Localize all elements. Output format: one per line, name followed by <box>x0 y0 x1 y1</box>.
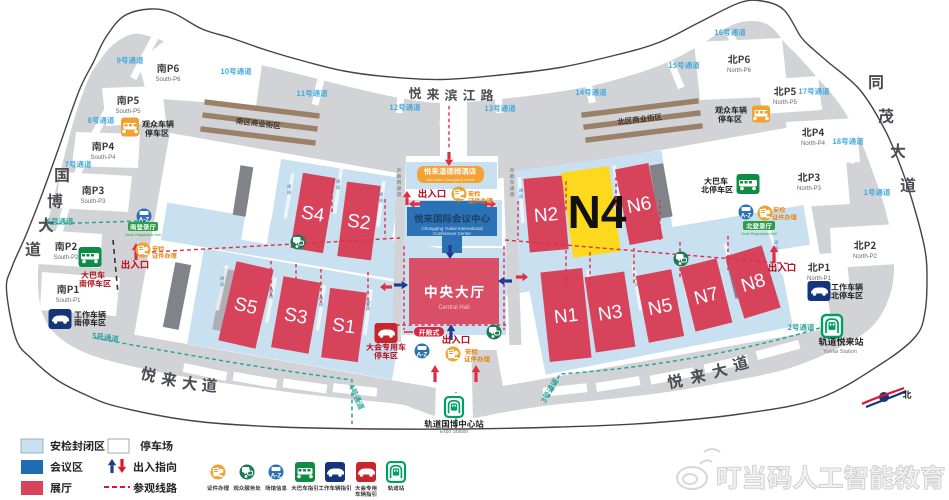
svg-text:Central Hall: Central Hall <box>438 305 469 311</box>
svg-text:North-P6: North-P6 <box>727 68 752 74</box>
svg-text:S4: S4 <box>300 202 327 227</box>
svg-text:North-P2: North-P2 <box>853 254 878 260</box>
svg-text:Yuelai Station: Yuelai Station <box>823 349 857 355</box>
svg-text:A-Z: A-Z <box>271 473 282 480</box>
svg-text:South-P3: South-P3 <box>80 199 106 205</box>
svg-text:North-P4: North-P4 <box>801 141 826 147</box>
svg-text:North Registration Hall: North Registration Hall <box>741 232 776 236</box>
svg-text:South-P6: South-P6 <box>155 77 181 83</box>
svg-text:N2: N2 <box>533 204 559 227</box>
svg-text:Wyndham Chongqing Yuelai: Wyndham Chongqing Yuelai <box>426 178 474 182</box>
svg-text:S1: S1 <box>331 315 357 339</box>
svg-text:A-Z: A-Z <box>741 213 752 220</box>
svg-text:A-Z: A-Z <box>417 352 428 359</box>
svg-text:South-P4: South-P4 <box>90 155 116 161</box>
svg-text:N1: N1 <box>553 305 579 328</box>
svg-text:Conference Center: Conference Center <box>433 231 472 236</box>
svg-text:South Registration Hall: South Registration Hall <box>125 233 161 237</box>
svg-text:N4: N4 <box>568 186 627 238</box>
svg-text:South-P1: South-P1 <box>55 298 81 304</box>
svg-text:North-P3: North-P3 <box>797 186 822 192</box>
svg-text:North-P5: North-P5 <box>773 100 798 106</box>
svg-text:Expo Station: Expo Station <box>440 429 469 435</box>
svg-text:S3: S3 <box>282 304 309 329</box>
svg-text:South-P5: South-P5 <box>115 109 141 115</box>
svg-text:N3: N3 <box>597 301 624 325</box>
svg-text:South-P2: South-P2 <box>53 255 79 261</box>
svg-text:S2: S2 <box>346 211 372 235</box>
